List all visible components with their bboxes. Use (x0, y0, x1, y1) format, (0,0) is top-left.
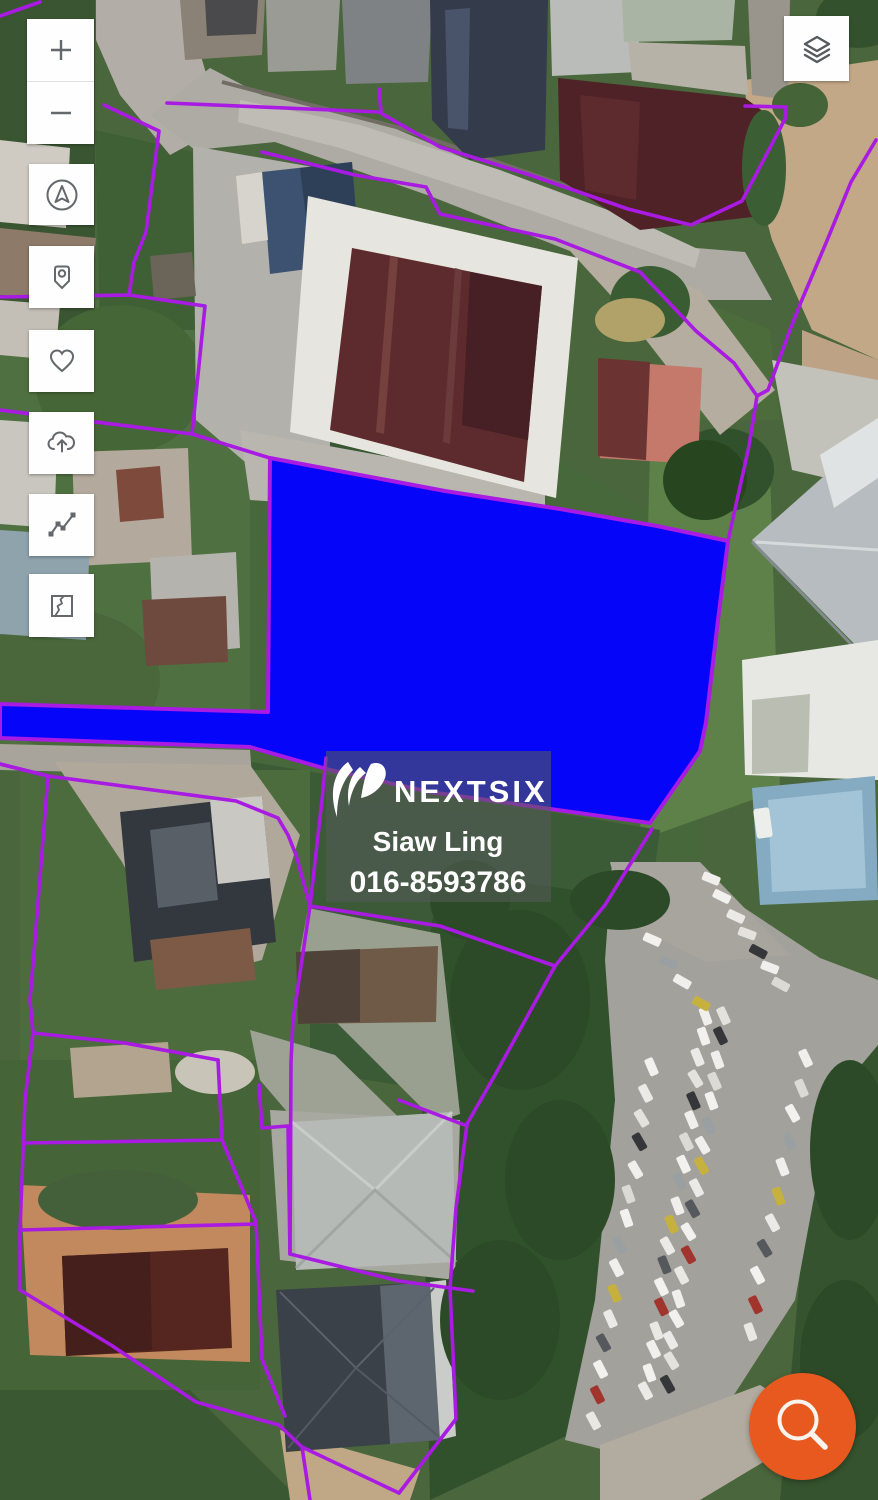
svg-text:016-8593786: 016-8593786 (350, 866, 527, 899)
svg-text:Siaw Ling: Siaw Ling (373, 826, 504, 857)
svg-text:NEXTSIX: NEXTSIX (394, 774, 548, 809)
